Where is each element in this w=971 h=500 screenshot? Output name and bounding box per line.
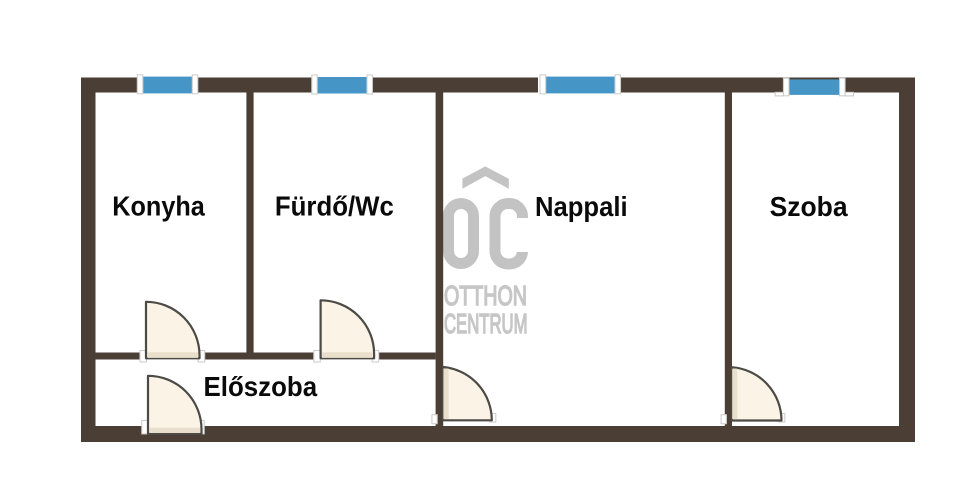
svg-text:Szoba: Szoba <box>770 191 848 222</box>
svg-text:OTTHON: OTTHON <box>444 280 527 311</box>
svg-text:CENTRUM: CENTRUM <box>444 308 528 339</box>
svg-text:Nappali: Nappali <box>535 191 628 222</box>
svg-text:Fürdő/Wc: Fürdő/Wc <box>275 191 394 222</box>
svg-text:Konyha: Konyha <box>112 191 205 222</box>
svg-text:Előszoba: Előszoba <box>204 371 318 402</box>
